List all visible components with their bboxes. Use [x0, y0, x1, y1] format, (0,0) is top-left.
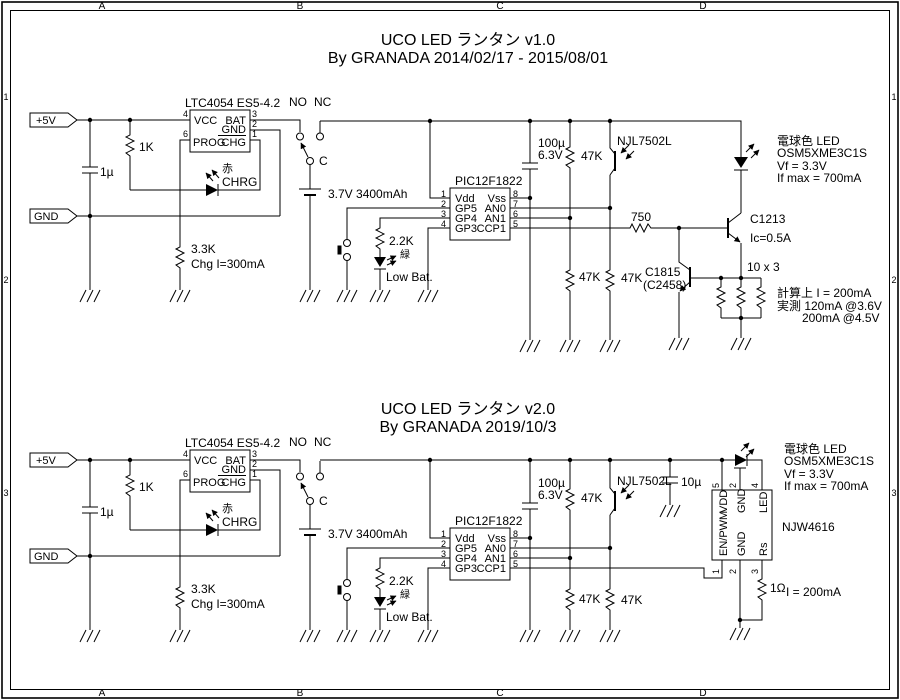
schematic-v1: UCO LED ランタン v1.0 By GRANADA 2014/02/17 …: [30, 31, 882, 352]
v1-resistor-750-label: 750: [631, 210, 651, 224]
ground-icon: [300, 630, 320, 642]
v2-sw-c-label: C: [319, 494, 328, 508]
v2-drv-pinno-3: 3: [750, 569, 760, 574]
ground-icon: [170, 290, 190, 302]
pushbutton-actuator: [338, 586, 342, 595]
led-ray-icon: [741, 443, 749, 451]
v2-pic-section: PIC12F1822 Vdd GP5 GP4 GP3 Vss AN0 AN1 C…: [337, 460, 530, 642]
v2-cap-1u: [82, 460, 98, 630]
ground-icon: [730, 628, 750, 640]
v1-sense-section: 100µ 6.3V 47K 47K NJL7502L 47K: [510, 121, 672, 352]
switch-nc-contact: [317, 473, 324, 480]
v2-ltc-pin-vcc: VCC: [194, 455, 217, 467]
ground-icon: [731, 338, 751, 350]
v2-battery-label: 3.7V 3400mAh: [328, 527, 407, 541]
v2-pic-label: PIC12F1822: [455, 514, 523, 528]
v2-resistor-2k2-label: 2.2K: [389, 574, 414, 588]
ground-icon: [80, 630, 100, 642]
v2-resistor-1k-label: 1K: [139, 480, 154, 494]
v2-ltc-pin-prog: PROG: [193, 477, 225, 489]
v1-ltc-pinno-3: 3: [252, 109, 257, 119]
v2-cap-10u: [662, 460, 678, 505]
v2-title: UCO LED ランタン v2.0: [381, 400, 555, 418]
v1-emitter-resistor: [717, 285, 725, 311]
switch-common-contact: [307, 498, 314, 505]
v1-ltc-pinno-1: 1: [252, 129, 257, 139]
v2-ltc-pinno-3: 3: [252, 449, 257, 459]
v2-resistor-47k-top: [566, 487, 574, 513]
ground-icon: [560, 630, 580, 642]
v2-sw-no-label: NO: [289, 435, 307, 449]
v1-lowbat-led-label: Low Bat.: [386, 270, 433, 284]
v2-resistor-3k3: [176, 585, 184, 611]
v2-drv-pin-gnd-bot: GND: [736, 532, 748, 557]
v2-lowbat-led-label: Low Bat.: [386, 610, 433, 624]
v2-cap-100u-voltage: 6.3V: [538, 488, 563, 502]
v1-battery-label: 3.7V 3400mAh: [328, 187, 407, 201]
pushbutton-actuator: [338, 246, 342, 255]
v2-chrg-led-color: 赤: [222, 502, 233, 515]
v1-photo-label: NJL7502L: [617, 134, 672, 148]
v1-ltc-pinno-6: 6: [183, 129, 188, 139]
v1-sw-c-label: C: [319, 154, 328, 168]
v2-cap-10u-label: 10µ: [681, 475, 701, 489]
ground-icon: [560, 340, 580, 352]
v2-en-wire: [510, 560, 722, 578]
v2-drv-pinno-2t: 2: [728, 483, 738, 488]
v1-lowbat-led: [374, 257, 386, 267]
v1-pic-pin-gp3: GP3: [455, 223, 477, 235]
v2-ltc-pinno-4: 4: [183, 449, 188, 459]
led-ray-icon: [387, 601, 396, 605]
wire: [180, 480, 190, 630]
pushbutton-contact: [344, 240, 351, 247]
v2-drv-pinno-1: 1: [711, 569, 721, 574]
v1-resistor-1k: [126, 133, 134, 159]
v1-ltc-pin-prog: PROG: [193, 137, 225, 149]
light-ray-icon: [626, 491, 634, 499]
v1-ltc4054-label: LTC4054 ES5-4.2: [185, 96, 280, 110]
ground-icon: [418, 630, 438, 642]
frame-row-2-right: 2: [891, 275, 896, 285]
v1-resistor-3k3-label: 3.3K: [191, 242, 216, 256]
v2-lowbat-led-color: 緑: [400, 588, 410, 601]
v2-resistor-1k: [126, 473, 134, 499]
v2-charger-section: +5V GND 1µ 1K 赤 CHRG LTC4054 ES5-4.2 VCC…: [30, 436, 280, 642]
ground-icon: [418, 290, 438, 302]
schematic-sheet: A B C D A B C D 1 2 3 1 2 3 UCO LED ランタン…: [0, 0, 900, 700]
v1-led-info-4: If max = 700mA: [777, 171, 861, 185]
v2-resistor-47k-photo: [606, 587, 614, 613]
v1-cap-1u-label: 1µ: [100, 165, 114, 179]
v2-drv-pin-en: EN/PWM: [718, 511, 730, 556]
frame-row-3-left: 3: [3, 488, 8, 498]
v2-chrg-led: [206, 524, 218, 536]
ground-icon: [660, 505, 680, 517]
schematic-v2: UCO LED ランタン v2.0 By GRANADA 2019/10/3 +…: [30, 400, 874, 642]
v2-power-led: [735, 454, 747, 466]
ground-icon: [370, 290, 390, 302]
v1-pic-section: PIC12F1822 Vdd GP5 GP4 GP3 Vss AN0 AN1 C…: [337, 121, 530, 302]
frame-col-c-bottom: C: [496, 688, 503, 699]
v2-resistor-3k3-label: 3.3K: [191, 582, 216, 596]
v1-resistor-47k-bottom: [566, 268, 574, 294]
v2-resistor-47k-bottom: [566, 587, 574, 613]
v2-ltc-pin-chg: CHG: [222, 477, 246, 489]
v1-q2-alt-label: (C2458): [643, 278, 686, 292]
frame-col-a-bottom: A: [99, 688, 106, 699]
v1-resistor-47k-photo-label: 47K: [621, 271, 642, 285]
v2-sense-resistor: [758, 577, 766, 603]
v2-sense-resistor-label: 1Ω: [770, 581, 786, 595]
v1-note-1: 計算上 I = 200mA: [777, 285, 871, 300]
led-ray-icon: [746, 144, 754, 152]
v1-pic-label: PIC12F1822: [455, 174, 523, 188]
v1-chrg-led-label: CHRG: [222, 175, 257, 189]
v2-sense-note: I = 200mA: [786, 585, 841, 599]
wire: [734, 170, 748, 213]
v2-photo-label: NJL7502L: [617, 474, 672, 488]
v2-ltc-pin-gnd: GND: [222, 464, 247, 476]
v1-annotations: 電球色 LED OSM5XME3C1S Vf = 3.3V If max = 7…: [777, 134, 882, 325]
switch-nc-contact: [317, 133, 324, 140]
v1-note-3: 200mA @4.5V: [802, 311, 880, 325]
v1-chrg-led-color: 赤: [222, 162, 233, 175]
wire: [130, 460, 206, 530]
v2-cap-1u-label: 1µ: [100, 505, 114, 519]
v1-q1-note: Ic=0.5A: [750, 231, 791, 245]
v2-drv-pinno-5: 5: [711, 483, 721, 488]
v1-ltc-pin-vcc: VCC: [194, 115, 217, 127]
wire: [130, 120, 206, 190]
led-ray-icon: [387, 261, 396, 265]
frame-col-d-bottom: D: [699, 688, 706, 699]
frame-col-b-top: B: [297, 1, 304, 12]
v1-emitter-resistor: [737, 285, 745, 311]
v1-resistor-47k-top: [566, 145, 574, 171]
v2-resistor-2k2: [376, 566, 384, 592]
switch-common-contact: [307, 158, 314, 165]
pushbutton-contact: [344, 254, 351, 261]
v2-pic-pin-gp3: GP3: [455, 563, 477, 575]
v1-resistor-2k2-label: 2.2K: [389, 234, 414, 248]
ground-icon: [337, 630, 357, 642]
ground-icon: [520, 340, 540, 352]
frame-row-1-right: 1: [891, 92, 896, 102]
v2-switch-battery: NO NC C 3.7V 3400mAh: [250, 435, 407, 642]
led-ray-icon: [387, 596, 396, 600]
v2-byline: By GRANADA 2019/10/3: [380, 419, 557, 436]
v2-njw4616-label: NJW4616: [782, 520, 835, 534]
pushbutton-contact: [344, 580, 351, 587]
v2-pic-pin-ccp1: CCP1: [477, 563, 506, 575]
v1-q1-label: C1213: [750, 212, 786, 226]
v1-emitter-resistor: [757, 285, 765, 311]
v2-lowbat-led: [374, 597, 386, 607]
v1-switch-battery: NO NC C 3.7V 3400mAh: [250, 95, 407, 302]
v2-drv-pinno-4: 4: [750, 483, 760, 488]
v1-led-info-2: OSM5XME3C1S: [777, 146, 867, 160]
ground-icon: [600, 340, 620, 352]
v2-ltc-pinno-6: 6: [183, 469, 188, 479]
v1-resistor-1k-label: 1K: [139, 140, 154, 154]
frame-row-1-left: 1: [3, 92, 8, 102]
ground-icon: [370, 630, 390, 642]
led-ray-icon: [751, 150, 759, 158]
wire: [679, 228, 761, 338]
v1-lowbat-led-color: 緑: [400, 248, 410, 261]
v2-chg-current-note: Chg I=300mA: [191, 597, 265, 611]
v1-resistor-47k-photo: [606, 268, 614, 294]
ground-icon: [600, 630, 620, 642]
frame-row-2-left: 2: [3, 275, 8, 285]
v2-cap-100u: [522, 460, 538, 630]
frame-col-a-top: A: [99, 1, 106, 12]
v1-q2-label: C1815: [645, 265, 681, 279]
switch-blade: [301, 143, 308, 157]
led-ray-icon: [206, 513, 213, 521]
v1-cap-1u: [82, 120, 98, 290]
v1-charger-section: +5V GND 1µ 1K 赤 CHRG LTC4054 ES5-4.2 VCC…: [30, 96, 280, 302]
switch-blade: [301, 483, 308, 497]
v1-resistor-47k-bottom-label: 47K: [579, 270, 600, 284]
switch-no-contact: [297, 473, 304, 480]
v2-chrg-led-label: CHRG: [222, 515, 257, 529]
ground-icon: [170, 630, 190, 642]
v1-plus5v-label: +5V: [36, 115, 57, 127]
v1-ltc-pin-chg: CHG: [222, 137, 246, 149]
v2-drv-pin-led: LED: [758, 492, 770, 513]
ground-icon: [337, 290, 357, 302]
v1-resistor-2k2: [376, 226, 384, 252]
ground-icon: [669, 338, 689, 350]
v1-ltc-pin-gnd: GND: [222, 124, 247, 136]
pushbutton-contact: [344, 594, 351, 601]
v1-ltc-pinno-4: 4: [183, 109, 188, 119]
v2-drv-pin-gnd-top: GND: [736, 489, 748, 514]
frame-col-d-top: D: [699, 1, 706, 12]
v1-title: UCO LED ランタン v1.0: [381, 31, 555, 49]
led-ray-icon: [212, 170, 219, 178]
v1-pic-pin-ccp1: CCP1: [477, 223, 506, 235]
v2-plus5v-label: +5V: [36, 455, 57, 467]
v1-chg-current-note: Chg I=300mA: [191, 257, 265, 271]
led-ray-icon: [212, 510, 219, 518]
led-ray-icon: [746, 449, 754, 457]
v2-resistor-47k-bottom-label: 47K: [579, 592, 600, 606]
ground-icon: [80, 290, 100, 302]
v2-led-info-4: If max = 700mA: [784, 479, 868, 493]
ground-icon: [520, 630, 540, 642]
switch-no-contact: [297, 133, 304, 140]
wire: [180, 140, 190, 290]
emitter-arrow: [728, 233, 740, 242]
v1-gnd-label: GND: [34, 211, 59, 223]
v2-gnd-label: GND: [34, 551, 59, 563]
v2-ltc4054-label: LTC4054 ES5-4.2: [185, 436, 280, 450]
light-ray-icon: [626, 151, 634, 159]
v1-driver-section: 750 C1213 Ic=0.5A C1815 (C2458) 10 x 3: [510, 144, 791, 350]
frame-col-b-bottom: B: [297, 688, 304, 699]
ground-icon: [300, 290, 320, 302]
v2-annotations: 電球色 LED OSM5XME3C1S Vf = 3.3V If max = 7…: [784, 442, 874, 493]
v1-resistor-750: [628, 224, 654, 232]
v2-drv-pin-vdd: VDD: [718, 490, 730, 513]
v1-cap-100u: [522, 121, 538, 340]
v2-sw-nc-label: NC: [314, 435, 332, 449]
v1-sw-nc-label: NC: [314, 95, 332, 109]
v1-emitter-resistor-label: 10 x 3: [747, 260, 780, 274]
wire: [728, 213, 741, 278]
v2-drv-pin-rs: Rs: [758, 542, 770, 556]
v1-sw-no-label: NO: [289, 95, 307, 109]
v2-led-info-2: OSM5XME3C1S: [784, 454, 874, 468]
v2-ltc-pinno-1: 1: [252, 469, 257, 479]
v2-resistor-47k-top-label: 47K: [581, 491, 602, 505]
v2-drv-pinno-2b: 2: [728, 569, 738, 574]
v2-sense-section: 100µ 6.3V 47K 47K NJL7502L 47K 10µ: [510, 460, 701, 642]
v1-power-led: [734, 157, 748, 168]
v1-resistor-3k3: [176, 245, 184, 271]
frame-row-3-right: 3: [891, 488, 896, 498]
v1-cap-100u-voltage: 6.3V: [538, 148, 563, 162]
v1-byline: By GRANADA 2014/02/17 - 2015/08/01: [328, 50, 608, 67]
frame-col-c-top: C: [496, 1, 503, 12]
schematic-canvas: A B C D A B C D 1 2 3 1 2 3 UCO LED ランタン…: [0, 0, 900, 700]
v1-chrg-led: [206, 184, 218, 196]
v2-resistor-47k-photo-label: 47K: [621, 593, 642, 607]
led-ray-icon: [206, 173, 213, 181]
led-ray-icon: [387, 256, 396, 260]
v1-resistor-47k-top-label: 47K: [581, 149, 602, 163]
